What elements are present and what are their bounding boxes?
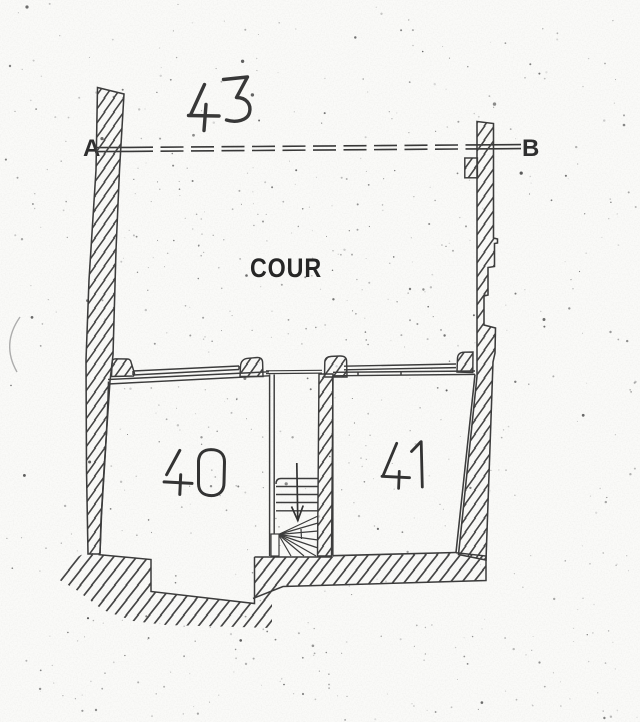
svg-text:COUR: COUR <box>250 253 322 283</box>
svg-text:B: B <box>522 135 539 162</box>
